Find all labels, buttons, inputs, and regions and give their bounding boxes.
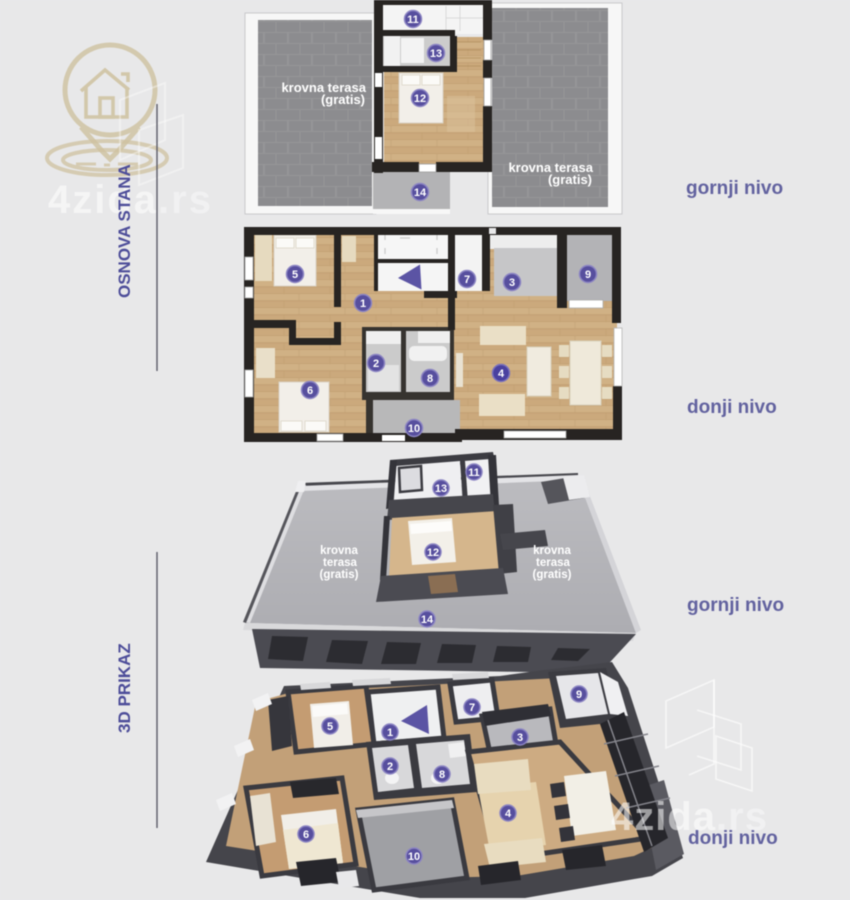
svg-text:krovna: krovna	[533, 545, 571, 557]
svg-text:6: 6	[307, 385, 313, 397]
svg-text:gornji nivo: gornji nivo	[687, 595, 784, 616]
svg-text:12: 12	[427, 547, 439, 559]
svg-text:4: 4	[505, 808, 512, 820]
svg-text:2: 2	[373, 358, 379, 370]
svg-text:4: 4	[498, 368, 505, 380]
svg-text:terasa: terasa	[536, 557, 570, 569]
svg-text:9: 9	[576, 689, 582, 701]
svg-text:12: 12	[414, 93, 426, 105]
svg-text:terasa: terasa	[323, 557, 357, 569]
svg-text:3: 3	[509, 277, 515, 289]
svg-text:10: 10	[408, 423, 420, 435]
svg-text:4zida.rs: 4zida.rs	[611, 795, 768, 839]
svg-text:3D PRIKAZ: 3D PRIKAZ	[115, 643, 134, 733]
svg-text:11: 11	[468, 467, 480, 479]
svg-text:krovna: krovna	[320, 545, 358, 557]
svg-text:5: 5	[292, 269, 298, 281]
svg-text:(gratis): (gratis)	[321, 92, 365, 107]
svg-text:1: 1	[387, 727, 393, 739]
svg-text:14: 14	[414, 187, 427, 199]
svg-text:7: 7	[469, 702, 475, 714]
svg-text:3: 3	[517, 732, 523, 744]
svg-text:2: 2	[387, 761, 393, 773]
svg-text:13: 13	[435, 483, 447, 495]
svg-text:(gratis): (gratis)	[533, 569, 572, 581]
svg-text:OSNOVA STANA: OSNOVA STANA	[115, 164, 134, 298]
svg-text:donji nivo: donji nivo	[687, 397, 777, 418]
svg-text:14: 14	[421, 614, 434, 626]
svg-text:10: 10	[408, 851, 420, 863]
svg-text:9: 9	[585, 269, 591, 281]
svg-text:8: 8	[439, 769, 445, 781]
svg-text:(gratis): (gratis)	[320, 569, 359, 581]
svg-text:(gratis): (gratis)	[548, 172, 592, 187]
svg-text:6: 6	[303, 829, 309, 841]
svg-text:13: 13	[430, 48, 442, 60]
svg-text:gornji nivo: gornji nivo	[686, 178, 783, 199]
svg-text:1: 1	[360, 298, 366, 310]
svg-text:5: 5	[327, 721, 333, 733]
svg-text:11: 11	[407, 14, 419, 26]
svg-text:7: 7	[464, 274, 470, 286]
svg-text:8: 8	[427, 373, 433, 385]
